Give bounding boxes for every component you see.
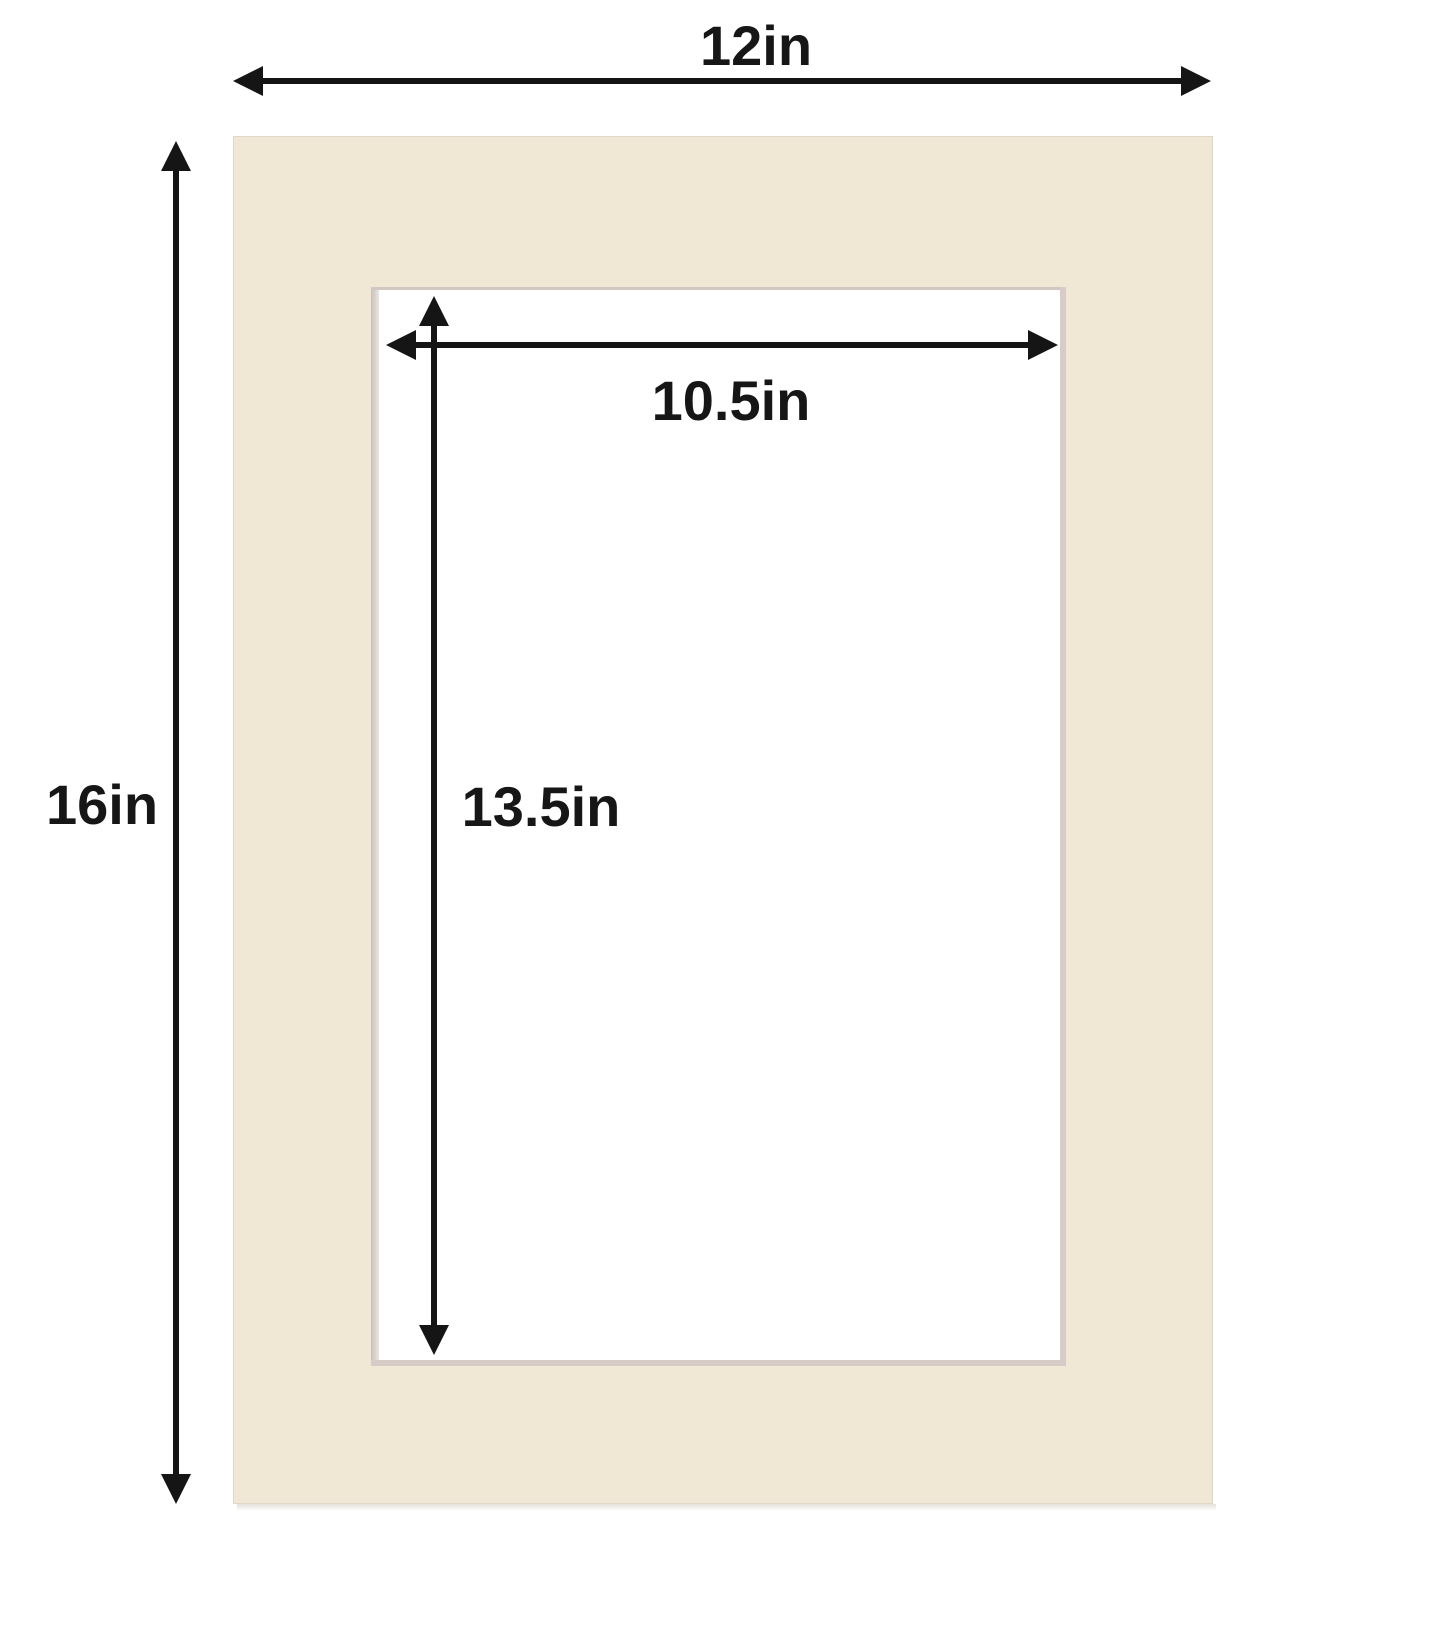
svg-text:12in: 12in xyxy=(700,14,812,77)
svg-text:13.5in: 13.5in xyxy=(462,775,621,838)
svg-text:16in: 16in xyxy=(46,773,158,836)
svg-text:10.5in: 10.5in xyxy=(652,369,811,432)
